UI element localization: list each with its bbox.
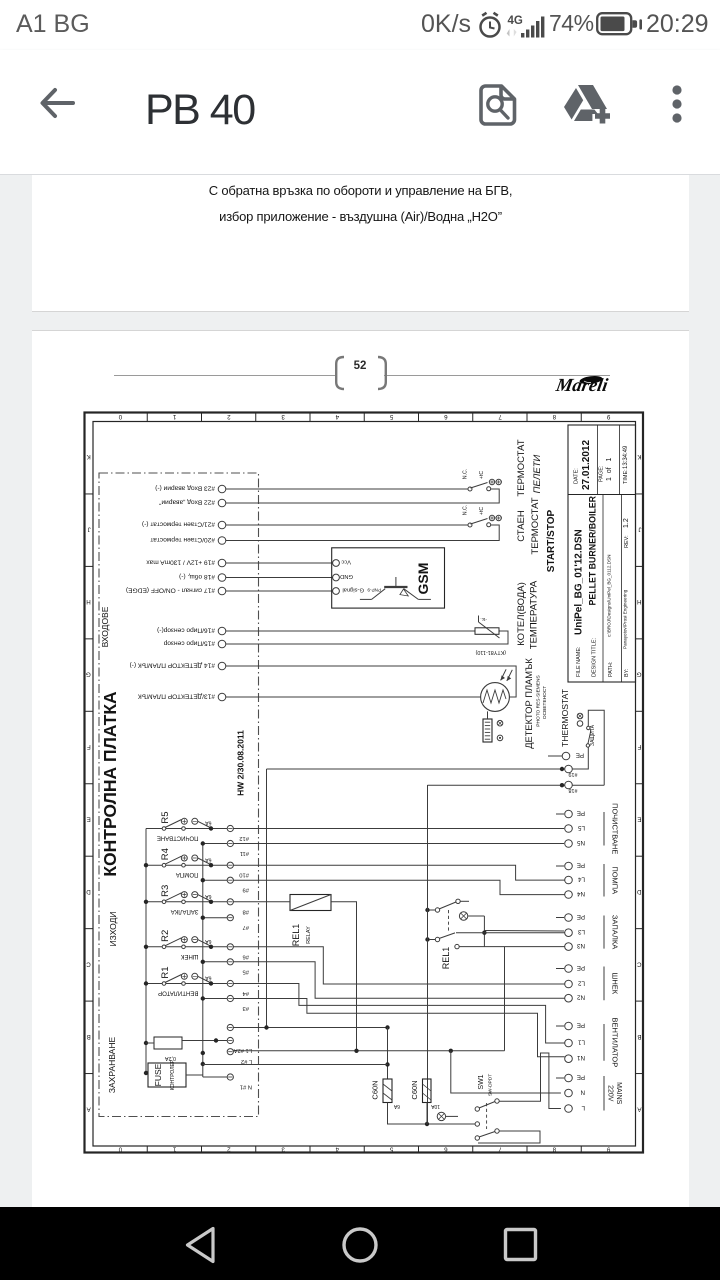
svg-text:ВЕНТИЛАТОР: ВЕНТИЛАТОР <box>611 1017 620 1067</box>
svg-text:L: L <box>581 1104 585 1111</box>
svg-text:G: G <box>637 671 642 678</box>
svg-text:#4: #4 <box>242 990 249 996</box>
svg-text:R5: R5 <box>160 811 171 823</box>
svg-text:5: 5 <box>389 413 393 420</box>
svg-text:6: 6 <box>444 1146 448 1153</box>
svg-text:D: D <box>86 888 91 895</box>
svg-text:ШНЕК: ШНЕК <box>180 953 198 960</box>
svg-text:#11: #11 <box>240 850 249 856</box>
svg-text:c:\BROJ\Designs\UniPel_BG_0112: c:\BROJ\Designs\UniPel_BG_0112.DSN <box>607 555 612 637</box>
svg-text:RELAY: RELAY <box>306 926 312 944</box>
svg-text:MAINS: MAINS <box>615 1082 622 1105</box>
svg-text:5: 5 <box>389 1146 393 1153</box>
svg-text:КОНТРОЛНА ПЛАТКА: КОНТРОЛНА ПЛАТКА <box>100 691 120 877</box>
svg-text:PE: PE <box>577 1073 585 1080</box>
svg-text:1 of 1: 1 of 1 <box>606 458 613 481</box>
svg-text:L #2: L #2 <box>241 1058 252 1064</box>
svg-text:N4: N4 <box>577 890 585 897</box>
svg-text:C: C <box>637 960 642 967</box>
svg-text:#22 Вход „аварии”: #22 Вход „аварии” <box>159 499 215 506</box>
svg-text:#3: #3 <box>243 1005 249 1011</box>
svg-text:REL1: REL1 <box>291 924 301 947</box>
svg-text:#18: #18 <box>569 787 578 793</box>
svg-text:13:34:49: 13:34:49 <box>623 445 629 469</box>
svg-text:SW-DPDT: SW-DPDT <box>488 1074 494 1096</box>
svg-text:1: 1 <box>172 413 176 420</box>
svg-text:4G: 4G <box>508 15 523 27</box>
svg-text:6A: 6A <box>393 1103 400 1109</box>
svg-text:10A: 10A <box>430 1103 440 1109</box>
svg-text:4: 4 <box>335 1146 339 1153</box>
svg-text:A: A <box>637 1105 642 1112</box>
svg-text:220V: 220V <box>607 1085 614 1102</box>
svg-text:ЗАЩИТА: ЗАЩИТА <box>590 724 596 746</box>
svg-text:#14 ДЕТЕКТОР ПЛАМЪК (-): #14 ДЕТЕКТОР ПЛАМЪК (-) <box>130 662 216 669</box>
svg-text:REV:: REV: <box>624 535 630 548</box>
svg-text:#20/Стаен термостат: #20/Стаен термостат <box>150 536 215 543</box>
svg-text:L1 #2A: L1 #2A <box>233 1047 252 1053</box>
svg-text:R1: R1 <box>160 966 171 978</box>
svg-text:F: F <box>638 743 642 750</box>
svg-text:B: B <box>87 1033 91 1040</box>
svg-text:-tc.: -tc. <box>480 616 487 622</box>
svg-text:ЗАПАЛКА: ЗАПАЛКА <box>611 915 620 949</box>
svg-text:UniPel_BG_01'12.DSN: UniPel_BG_01'12.DSN <box>574 529 585 635</box>
svg-text:8: 8 <box>552 1146 556 1153</box>
svg-text:H: H <box>86 598 90 605</box>
svg-text:K: K <box>637 453 642 460</box>
svg-text:PE: PE <box>577 861 585 868</box>
svg-text:L4: L4 <box>578 875 585 882</box>
svg-text:DATE:: DATE: <box>574 468 580 484</box>
svg-text:ТЕРМОСТАТ: ТЕРМОСТАТ <box>530 497 541 554</box>
svg-text:ПОЧИСТВАНЕ: ПОЧИСТВАНЕ <box>611 803 620 854</box>
svg-text:PNP-9: PNP-9 <box>367 588 381 593</box>
svg-text:PE: PE <box>577 1021 585 1028</box>
svg-text:СТАЕН: СТАЕН <box>516 510 527 542</box>
svg-text:7: 7 <box>498 413 502 420</box>
svg-text:PE: PE <box>576 752 584 759</box>
svg-text:КОТЕЛ(ВОДА): КОТЕЛ(ВОДА) <box>516 582 527 646</box>
svg-text:B: B <box>637 1033 641 1040</box>
svg-text:ЗАПАЛКА: ЗАПАЛКА <box>170 908 199 915</box>
svg-text:PAGE:: PAGE: <box>599 465 605 482</box>
svg-text:3: 3 <box>281 413 285 420</box>
svg-text:START/STOP: START/STOP <box>546 509 557 572</box>
svg-text:GND: GND <box>340 573 353 579</box>
svg-text:#16/Пиро сензор(-): #16/Пиро сензор(-) <box>157 627 215 634</box>
svg-text:K: K <box>86 453 91 460</box>
svg-text:#9: #9 <box>243 887 249 893</box>
svg-text:BY:: BY: <box>624 668 630 677</box>
svg-text:1: 1 <box>172 1146 176 1153</box>
svg-text:R3: R3 <box>160 885 171 897</box>
svg-text:THERMOSTAT: THERMOSTAT <box>560 688 570 747</box>
svg-text:(KTY81-110): (KTY81-110) <box>475 649 506 655</box>
svg-text:#12: #12 <box>239 835 249 841</box>
svg-text:+tC: +tC <box>479 471 485 479</box>
svg-text:N.C.: N.C. <box>463 469 469 479</box>
svg-text:8: 8 <box>552 413 556 420</box>
svg-text:E: E <box>637 815 641 822</box>
svg-text:ДЕТЕКТОР ПЛАМЪК: ДЕТЕКТОР ПЛАМЪК <box>524 658 534 749</box>
svg-text:#7: #7 <box>243 924 249 930</box>
svg-text:SW1: SW1 <box>478 1074 485 1089</box>
svg-text:ОСВЕТЕНОСТ: ОСВЕТЕНОСТ <box>542 686 548 719</box>
svg-text:HW 2/30.08.2011: HW 2/30.08.2011 <box>236 730 246 796</box>
svg-text:#10: #10 <box>239 872 249 878</box>
svg-text:C60N: C60N <box>371 1080 380 1099</box>
svg-text:#13/ДЕТЕКТОР ПЛАМЪК: #13/ДЕТЕКТОР ПЛАМЪК <box>138 693 215 700</box>
svg-text:0,2A: 0,2A <box>165 1055 176 1061</box>
svg-text:J: J <box>638 526 641 533</box>
svg-text:FILE NAME:: FILE NAME: <box>576 646 582 677</box>
svg-text:9: 9 <box>606 1146 610 1153</box>
svg-text:C60N: C60N <box>410 1080 419 1099</box>
svg-text:ПОМПА: ПОМПА <box>175 871 199 878</box>
svg-text:2: 2 <box>227 413 231 420</box>
svg-text:9: 9 <box>606 413 610 420</box>
svg-text:L2: L2 <box>578 979 585 986</box>
svg-text:FUSE: FUSE <box>153 1063 163 1086</box>
svg-text:N1: N1 <box>577 1054 585 1061</box>
svg-text:PE: PE <box>577 964 585 971</box>
svg-text:PATH:: PATH: <box>608 661 614 677</box>
svg-text:Panayotov\Prosi Engineering: Panayotov\Prosi Engineering <box>623 589 628 649</box>
svg-text:ИЗХОДИ: ИЗХОДИ <box>108 912 118 947</box>
svg-text:PE: PE <box>577 913 585 920</box>
svg-text:TIME:: TIME: <box>623 469 629 484</box>
svg-text:4: 4 <box>335 413 339 420</box>
svg-text:N: N <box>581 1088 585 1095</box>
svg-text:N #1: N #1 <box>240 1084 252 1090</box>
svg-text:6: 6 <box>444 413 448 420</box>
svg-text:1.2: 1.2 <box>623 518 630 528</box>
svg-text:0: 0 <box>118 1146 122 1153</box>
svg-text:G: G <box>86 671 91 678</box>
svg-text:#8: #8 <box>243 908 249 914</box>
svg-text:N.C.: N.C. <box>463 505 469 515</box>
svg-text:J: J <box>88 526 91 533</box>
svg-text:7: 7 <box>498 1146 502 1153</box>
svg-text:ЗАХРАНВАНЕ: ЗАХРАНВАНЕ <box>107 1037 117 1094</box>
svg-text:ВЕНТИЛАТОР: ВЕНТИЛАТОР <box>158 990 198 997</box>
svg-text:L1: L1 <box>578 1038 585 1045</box>
svg-text:N2: N2 <box>577 994 585 1001</box>
svg-text:#17 сигнал - ON/OFF (EDGE): #17 сигнал - ON/OFF (EDGE) <box>126 587 215 594</box>
svg-text:L3: L3 <box>578 928 585 935</box>
svg-text:ПОМПА: ПОМПА <box>611 866 620 894</box>
svg-text:R4: R4 <box>160 848 171 860</box>
svg-text:PE: PE <box>577 809 585 816</box>
svg-text:ВХОДОВЕ: ВХОДОВЕ <box>100 606 110 647</box>
svg-text:PHOTO RES-SIEMENS: PHOTO RES-SIEMENS <box>536 675 542 726</box>
svg-text:L5: L5 <box>578 824 585 831</box>
svg-text:DESIGN TITLE:: DESIGN TITLE: <box>592 638 598 677</box>
svg-text:ТЕМПЕРАТУРА: ТЕМПЕРАТУРА <box>529 580 540 649</box>
svg-text:Vcc: Vcc <box>341 559 351 565</box>
svg-text:H: H <box>637 598 641 605</box>
svg-text:0: 0 <box>118 413 122 420</box>
svg-text:F: F <box>87 743 91 750</box>
svg-text:#21/Стаен термостат (-): #21/Стаен термостат (-) <box>142 521 215 528</box>
svg-text:D: D <box>637 888 642 895</box>
svg-text:ШНЕК: ШНЕК <box>611 973 620 995</box>
svg-text:#6: #6 <box>243 953 249 959</box>
svg-text:A: A <box>86 1105 91 1112</box>
svg-text:2: 2 <box>227 1146 231 1153</box>
svg-text:+tC: +tC <box>479 507 485 515</box>
svg-text:27.01.2012: 27.01.2012 <box>581 440 592 490</box>
svg-text:G-signal: G-signal <box>342 587 364 593</box>
svg-text:N5: N5 <box>577 839 585 846</box>
svg-text:#15/Пиро сензор: #15/Пиро сензор <box>163 640 215 647</box>
svg-text:#19: #19 <box>569 771 578 777</box>
svg-text:C: C <box>86 960 91 967</box>
svg-text:ПЕЛЕТИ: ПЕЛЕТИ <box>532 454 543 493</box>
svg-text:R2: R2 <box>160 930 171 942</box>
svg-text:#5: #5 <box>243 968 249 974</box>
svg-text:#19 +12V / 130mA max: #19 +12V / 130mA max <box>146 559 215 566</box>
svg-text:КОНТРОЛЕР: КОНТРОЛЕР <box>170 1059 176 1090</box>
svg-text:#23 Вход аварии (-): #23 Вход аварии (-) <box>155 485 215 492</box>
svg-text:GSM: GSM <box>415 563 431 595</box>
svg-text:ПОЧИСТВАНЕ: ПОЧИСТВАНЕ <box>157 835 199 842</box>
svg-text:ТЕРМОСТАТ: ТЕРМОСТАТ <box>516 439 527 496</box>
svg-text:3: 3 <box>281 1146 285 1153</box>
svg-text:E: E <box>87 815 91 822</box>
svg-text:N3: N3 <box>577 942 585 949</box>
svg-text:#18 общ. (-): #18 общ. (-) <box>179 573 215 581</box>
svg-text:REL1: REL1 <box>441 947 451 970</box>
svg-text:PELLET BURNER/BOILER: PELLET BURNER/BOILER <box>588 495 598 605</box>
